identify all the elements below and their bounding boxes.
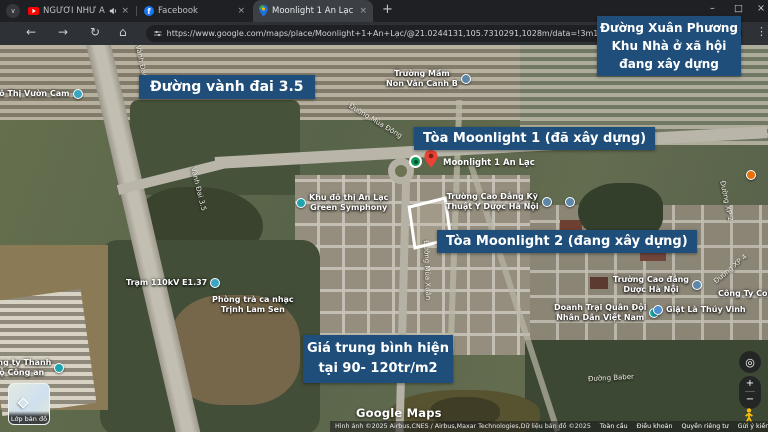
new-tab-button[interactable]: + <box>382 2 393 17</box>
annotation-ring-road: Đường vành đai 3.5 <box>139 75 315 99</box>
poi-label: Phòng trà ca nhạc Trịnh Lam Sen <box>212 295 294 315</box>
attribution-bar: Hình ảnh ©2025 Airbus,CNES / Airbus,Maxa… <box>330 421 768 432</box>
browser-menu-button[interactable]: ⋮ <box>756 25 767 38</box>
tab-close-icon[interactable]: × <box>121 6 129 16</box>
poi-label: Doanh Trại Quân Đội Nhân Dân Việt Nam <box>554 303 646 323</box>
tab-title: Facebook <box>158 6 233 16</box>
poi-icon <box>73 89 83 99</box>
my-location-icon: ◎ <box>745 356 755 369</box>
link-toan-cau[interactable]: Toàn cầu <box>600 423 628 430</box>
google-maps-logo: Google Maps <box>356 406 442 420</box>
facebook-icon: f <box>144 6 154 16</box>
my-location-button[interactable]: ◎ <box>739 351 761 373</box>
poi-label: Trường Cao Đẳng Kỹ Thuật Y Dược Hà Nội <box>446 192 539 212</box>
poi-label: Trường Cao đẳng Dược Hà Nội <box>613 275 689 295</box>
home-button[interactable]: ⌂ <box>119 25 127 39</box>
link-dieu-khoan[interactable]: Điều khoản <box>637 423 673 430</box>
imagery-credit: Hình ảnh ©2025 Airbus,CNES / Airbus,Maxa… <box>335 423 591 430</box>
poi-truong-cao-dang-duoc[interactable]: Trường Cao đẳng Dược Hà Nội <box>613 275 702 295</box>
poi-phong-tra[interactable]: Phòng trà ca nhạc Trịnh Lam Sen <box>212 295 294 315</box>
close-button[interactable]: × <box>757 3 765 14</box>
tab-youtube[interactable]: NGƯỜI NHƯ ANH XỨNG Đ × <box>22 0 135 22</box>
maps-pin-icon <box>259 5 268 17</box>
poi-giat-la-thuy-vinh[interactable]: Giặt Là Thúy Vinh <box>653 305 746 315</box>
poi-tram-110kv[interactable]: Trạm 110kV E1.37 <box>126 278 220 288</box>
minimize-button[interactable]: – <box>710 3 715 14</box>
green-place-marker[interactable] <box>409 155 422 168</box>
layers-label: Lớp bản đồ <box>9 411 49 424</box>
poi-label: Công ty Thanh Bộ Công an <box>0 358 51 378</box>
zoom-out-button[interactable]: − <box>746 392 754 407</box>
red-map-pin[interactable] <box>424 150 438 172</box>
poi-label: Trạm 110kV E1.37 <box>126 278 207 288</box>
tab-search-button[interactable]: ∨ <box>6 4 20 18</box>
reload-button[interactable]: ↻ <box>90 25 100 39</box>
tab-close-icon[interactable]: × <box>359 6 367 16</box>
school-icon <box>692 280 702 290</box>
selected-place-label[interactable]: Moonlight 1 An Lạc <box>443 158 535 168</box>
maximize-button[interactable]: □ <box>734 3 743 14</box>
poi-label: Khu Đô Thị Vườn Cam <box>0 89 70 99</box>
poi-an-lac-green-symphony[interactable]: Khu đô thị An Lạc Green Symphony <box>296 193 388 213</box>
school-icon <box>461 74 471 84</box>
poi-cong-ty-thanh-bo-cong-an[interactable]: Công ty Thanh Bộ Công an <box>0 358 64 378</box>
poi-icon <box>210 278 220 288</box>
tab-facebook[interactable]: f Facebook × <box>138 0 251 22</box>
youtube-icon <box>28 7 39 15</box>
poi-icon <box>54 363 64 373</box>
back-button[interactable]: ← <box>26 25 36 39</box>
layers-icon <box>17 397 28 408</box>
annotation-moonlight1: Tòa Moonlight 1 (đã xây dựng) <box>414 127 655 150</box>
school-icon <box>542 197 552 207</box>
annotation-xuan-phuong: Đường Xuân Phương Khu Nhà ở xã hội đang … <box>597 16 741 76</box>
site-info-tune-icon[interactable] <box>154 29 162 38</box>
link-quyen-rieng-tu[interactable]: Quyền riêng tư <box>681 423 728 430</box>
tab-title: Moonlight 1 An Lạc - Google M <box>272 6 355 16</box>
zoom-in-button[interactable]: + <box>746 376 754 391</box>
poi-label: Giặt Là Thúy Vinh <box>666 305 746 315</box>
chevron-down-icon: ∨ <box>10 7 15 15</box>
annotation-moonlight2: Tòa Moonlight 2 (đang xây dựng) <box>437 230 697 253</box>
map-layers-button[interactable]: Lớp bản đồ <box>8 383 50 425</box>
poi-label: Trường Mầm Non Vân Canh B <box>386 69 458 89</box>
terrain-green-southeast <box>525 340 768 432</box>
building-roof <box>590 277 608 289</box>
tab-title: NGƯỜI NHƯ ANH XỨNG Đ <box>43 6 105 16</box>
tab-google-maps-active[interactable]: Moonlight 1 An Lạc - Google M × <box>253 0 373 22</box>
poi-truong-cao-dang-ky-thuat[interactable]: Trường Cao Đẳng Kỹ Thuật Y Dược Hà Nội <box>446 192 575 212</box>
browser-window: ∨ NGƯỜI NHƯ ANH XỨNG Đ × f Facebook × Mo… <box>0 0 768 432</box>
link-feedback[interactable]: Gửi ý kiến phản hồi về sản phẩm <box>738 423 768 430</box>
audio-speaker-icon <box>109 7 117 15</box>
school-icon <box>565 197 575 207</box>
poi-vuon-cam[interactable]: Khu Đô Thị Vườn Cam <box>0 89 83 99</box>
poi-label: Công Ty Contai <box>718 289 768 299</box>
zoom-controls: + − <box>739 376 761 409</box>
poi-icon <box>296 198 306 208</box>
poi-cong-ty-container[interactable]: Công Ty Contai <box>718 289 768 299</box>
tab-divider <box>136 6 137 16</box>
poi-mam-non-van-canh[interactable]: Trường Mầm Non Vân Canh B <box>386 69 471 89</box>
poi-label: Khu đô thị An Lạc Green Symphony <box>309 193 388 213</box>
annotation-price: Giá trung bình hiện tại 90- 120tr/m2 <box>303 335 453 383</box>
poi-doanh-trai-quan-doi[interactable]: Doanh Trại Quân Đội Nhân Dân Việt Nam <box>554 303 659 323</box>
tab-close-icon[interactable]: × <box>237 6 245 16</box>
restaurant-icon[interactable] <box>746 170 756 180</box>
forward-button[interactable]: → <box>58 25 68 39</box>
poi-icon <box>653 305 663 315</box>
